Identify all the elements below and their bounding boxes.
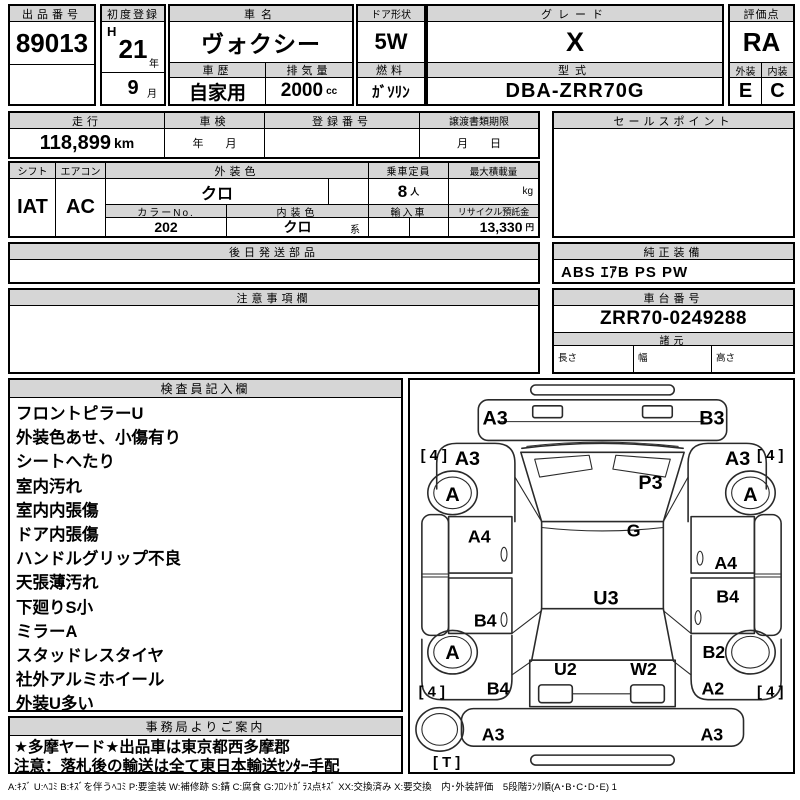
capacity-header: 乗車定員	[369, 163, 448, 179]
inspector-note-line: フロントピラーU	[16, 402, 401, 426]
diagram-label-wheel-front-left: A	[445, 484, 459, 506]
recycle-number: 13,330	[480, 219, 523, 235]
diagram-label-quarter-rear-right-lower: A2	[701, 679, 724, 699]
mileage-number: 118,899	[40, 132, 111, 155]
later-parts-value	[10, 260, 538, 282]
front-bumper-slot-left	[533, 406, 563, 418]
inspector-note-line: 外装U多い	[16, 692, 401, 716]
caution-value	[10, 306, 538, 372]
caution-header: 注意事項欄	[10, 290, 538, 306]
registration-no-header: 登録番号	[265, 113, 419, 129]
diagram-label-tire-front-left: [ 4 ]	[421, 448, 447, 464]
exterior-header: 外装	[730, 62, 761, 78]
chassis-no-value: ZRR70-0249288	[554, 306, 793, 332]
auction-no-value: 89013	[10, 22, 94, 64]
door-shape-value: 5W	[358, 22, 424, 62]
color-row-box: シフト IAT エアコン AC 外装色 クロ カラーNo. 内装色 202	[8, 161, 540, 238]
wheel-rear-right-outer	[726, 630, 775, 674]
exterior-color-header: 外装色	[106, 163, 368, 179]
inspector-note-line: 室内汚れ	[16, 475, 401, 499]
car-diagram-box: A3B3A3A3[ 4 ][ 4 ]AAP3GA4A4B4B4U3B4B2A2U…	[408, 378, 795, 774]
shift-header: シフト	[10, 163, 55, 179]
capacity-value: 8 人	[369, 179, 448, 204]
recycle-value: 13,330 円	[449, 218, 538, 236]
mileage-row-box: 走行 118,899 km 車検 年 月 登録番号 譲渡書類期限 月 日	[8, 111, 540, 159]
sales-point-box: セールスポイント	[552, 111, 795, 238]
equipment-header: 純正装備	[554, 244, 793, 260]
displacement-value: 2000 cc	[265, 78, 352, 104]
car-name-value: ヴォクシー	[170, 22, 352, 62]
wiper-blade-left	[535, 455, 592, 477]
auction-sheet: 出品番号 89013 初度登録 H 21 年 9 月 車名 ヴォクシー 車歴 排…	[0, 0, 800, 800]
inspector-note-line: ハンドルグリップ不良	[16, 547, 401, 571]
interior-color-suffix: 系	[350, 221, 360, 236]
damage-code-legend: A:ｷｽﾞ U:ﾍｺﾐ B:ｷｽﾞを伴うﾍｺﾐ P:要塗装 W:補修跡 S:錆 …	[8, 779, 798, 793]
interior-color-value: クロ 系	[226, 218, 368, 236]
score-header: 評価点	[730, 6, 793, 22]
color-no-header: カラーNo.	[106, 204, 226, 218]
tail-garnish-left	[539, 685, 573, 703]
inspector-note-line: 下廻りS小	[16, 596, 401, 620]
aircon-header: エアコン	[56, 163, 105, 179]
diagram-label-front-bumper-right: B3	[699, 408, 724, 430]
inspector-note-line: ミラーA	[16, 620, 401, 644]
front-bumper-slot-right	[643, 406, 673, 418]
first-registration-box: 初度登録 H 21 年 9 月	[100, 4, 166, 106]
cowl-arc	[542, 528, 664, 531]
diagram-label-door-rear-right: B4	[716, 587, 739, 607]
score-value: RA	[730, 22, 793, 62]
history-value: 自家用	[170, 78, 265, 104]
diagram-label-cowl: G	[627, 520, 641, 540]
first-registration-header: 初度登録	[102, 6, 164, 22]
interior-score: C	[761, 78, 793, 104]
car-name-header: 車名	[170, 6, 352, 22]
mileage-unit: km	[114, 135, 134, 151]
door-handle-rear-right	[695, 611, 701, 625]
shaken-hint: 年 月	[165, 129, 264, 157]
inspector-note-line: ドア内張傷	[16, 523, 401, 547]
rear-strip	[531, 755, 675, 765]
diagram-label-front-fender-left: A3	[455, 448, 480, 470]
later-parts-box: 後日発送部品	[8, 242, 540, 284]
chassis-no-header: 車台番号	[554, 290, 793, 306]
fuel-header: 燃料	[358, 62, 424, 78]
capacity-number: 8	[398, 182, 407, 202]
inspector-notes-list: フロントピラーU外装色あせ、小傷有りシートへたり室内汚れ室内内張傷ドア内張傷ハン…	[10, 398, 401, 717]
door-shape-header: ドア形状	[358, 6, 424, 22]
spare-tire-inner	[422, 714, 458, 746]
diagram-label-tire-rear-left: [ 4 ]	[419, 685, 445, 701]
equipment-box: 純正装備 ABS ｴｱB PS PW	[552, 242, 795, 284]
import-cell-right	[409, 218, 448, 236]
office-notice-box: 事務局よりご案内 ★多摩ヤード★出品車は東京都西多摩郡注意：落札後の輸送は全て東…	[8, 716, 403, 774]
interior-header: 内装	[761, 62, 793, 78]
shift-value: IAT	[10, 179, 55, 236]
diagram-label-hood: P3	[638, 472, 662, 494]
front-grille-strip	[531, 385, 675, 395]
inspector-note-line: シートへたり	[16, 450, 401, 474]
car-diagram-svg: A3B3A3A3[ 4 ][ 4 ]AAP3GA4A4B4B4U3B4B2A2U…	[410, 380, 793, 772]
height-label: 高さ	[716, 350, 735, 364]
diagram-label-quarter-rear-left: B4	[487, 679, 510, 699]
capacity-unit: 人	[410, 185, 419, 198]
recycle-unit: 円	[525, 221, 534, 233]
color-no-value: 202	[106, 218, 226, 236]
step-split-right	[754, 574, 781, 577]
car-name-box: 車名 ヴォクシー 車歴 排気量 自家用 2000 cc	[168, 4, 354, 106]
displacement-number: 2000	[281, 80, 323, 102]
diagram-label-front-bumper-left: A3	[482, 408, 507, 430]
grade-header: グレード	[428, 6, 722, 22]
width-label: 幅	[638, 350, 648, 364]
side-step-right	[754, 515, 781, 636]
office-notice-header: 事務局よりご案内	[10, 718, 401, 736]
year-suffix: 年	[149, 55, 159, 70]
diagram-label-door-rear-left: B4	[474, 610, 497, 630]
fuel-value: ｶﾞｿﾘﾝ	[358, 78, 424, 104]
diagram-label-tailgate-right: W2	[630, 659, 657, 679]
import-cell-left	[369, 218, 409, 236]
diagram-label-door-front-left: A4	[468, 526, 491, 546]
office-notice-line: ★多摩ヤード★出品車は東京都西多摩郡	[14, 738, 401, 757]
diagram-label-spare-tire: [ T ]	[433, 755, 460, 771]
max-load-value: kg	[449, 179, 538, 204]
auction-no-empty-cell	[10, 64, 94, 104]
month-suffix: 月	[147, 85, 157, 100]
inspector-note-line: スタッドレスタイヤ	[16, 644, 401, 668]
mileage-header: 走行	[10, 113, 164, 129]
spare-tire-outer	[416, 708, 464, 752]
door-shape-box: ドア形状 5W 燃料 ｶﾞｿﾘﾝ	[356, 4, 426, 106]
grade-box: グレード X 型式 DBA-ZRR70G	[426, 4, 724, 106]
side-step-left	[422, 515, 449, 636]
door-handle-front-right	[697, 551, 703, 565]
max-load-unit: kg	[522, 186, 533, 197]
chassis-box: 車台番号 ZRR70-0249288 諸元 長さ 幅 高さ	[552, 288, 795, 374]
diagram-label-rear-bumper-right: A3	[700, 724, 723, 744]
aircon-value: AC	[56, 179, 105, 236]
length-label: 長さ	[558, 350, 577, 364]
interior-color-text: クロ	[284, 217, 312, 237]
registration-no-value	[265, 129, 419, 157]
diagram-label-rear-bumper-left: A3	[482, 724, 505, 744]
exterior-color-empty-cell	[328, 179, 368, 204]
displacement-unit: cc	[326, 86, 337, 97]
recycle-header: リサイクル預託金	[449, 204, 538, 218]
max-load-header: 最大積載量	[449, 163, 538, 179]
inspector-notes-box: 検査員記入欄 フロントピラーU外装色あせ、小傷有りシートへたり室内汚れ室内内張傷…	[8, 378, 403, 712]
office-notice-line: 注意：落札後の輸送は全て東日本輸送ｾﾝﾀｰ手配	[14, 757, 401, 776]
front-bumper-outline	[478, 400, 726, 441]
shaken-header: 車検	[165, 113, 264, 129]
history-header: 車歴	[170, 62, 265, 78]
sales-point-header: セールスポイント	[554, 113, 793, 129]
specs-header: 諸元	[554, 332, 793, 346]
a-pillar-left-line	[515, 477, 542, 522]
model-code-value: DBA-ZRR70G	[428, 78, 722, 104]
displacement-header: 排気量	[265, 62, 352, 78]
interior-color-header: 内装色	[226, 204, 368, 218]
import-header: 輸入車	[369, 204, 448, 218]
caution-box: 注意事項欄	[8, 288, 540, 374]
diagram-label-wheel-rear-left: A	[445, 642, 459, 664]
diagram-label-wheel-front-right: A	[743, 484, 757, 506]
c-pillar-left-lower	[512, 661, 532, 675]
inspector-note-line: 天張薄汚れ	[16, 571, 401, 595]
auction-no-box: 出品番号 89013	[8, 4, 96, 106]
diagram-label-roof: U3	[593, 588, 618, 610]
inspector-note-line: 室内内張傷	[16, 499, 401, 523]
step-split-left	[422, 574, 449, 577]
office-notice-lines: ★多摩ヤード★出品車は東京都西多摩郡注意：落札後の輸送は全て東日本輸送ｾﾝﾀｰ手…	[10, 736, 401, 776]
diagram-label-front-fender-right: A3	[725, 448, 750, 470]
inspector-note-line: 社外アルミホイール	[16, 668, 401, 692]
tail-garnish-right	[631, 685, 665, 703]
exterior-score: E	[730, 78, 761, 104]
diagram-label-door-front-right: A4	[714, 553, 737, 573]
grade-value: X	[428, 22, 722, 62]
later-parts-header: 後日発送部品	[10, 244, 538, 260]
inspector-notes-header: 検査員記入欄	[10, 380, 401, 398]
transfer-deadline-header: 譲渡書類期限	[420, 113, 538, 129]
sales-point-value	[554, 129, 793, 234]
diagram-label-tire-front-right: [ 4 ]	[757, 448, 783, 464]
wheel-rear-right-inner	[732, 636, 770, 668]
equipment-value: ABS ｴｱB PS PW	[554, 260, 793, 282]
auction-no-header: 出品番号	[10, 6, 94, 22]
transfer-deadline-hint: 月 日	[420, 129, 538, 157]
diagram-label-quarter-rear-right-upper: B2	[702, 642, 725, 662]
model-code-header: 型式	[428, 62, 722, 78]
a-pillar-right-line	[663, 477, 688, 522]
score-box: 評価点 RA 外装 内装 E C	[728, 4, 795, 106]
diagram-label-tire-rear-right: [ 4 ]	[757, 685, 783, 701]
door-handle-front-left	[501, 547, 507, 561]
rear-window-outline	[532, 609, 674, 660]
inspector-note-line: 外装色あせ、小傷有り	[16, 426, 401, 450]
door-handle-rear-left	[501, 613, 507, 627]
mileage-value: 118,899 km	[10, 129, 164, 157]
exterior-color-value: クロ	[106, 179, 328, 204]
diagram-label-tailgate-left: U2	[554, 659, 577, 679]
